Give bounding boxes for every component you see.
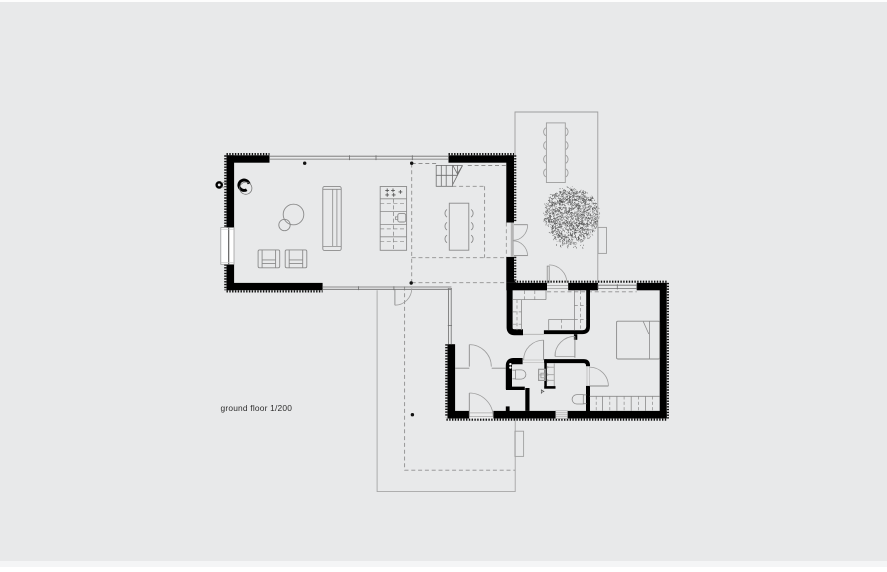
svg-text:ground floor 1/200: ground floor 1/200 <box>221 403 293 413</box>
